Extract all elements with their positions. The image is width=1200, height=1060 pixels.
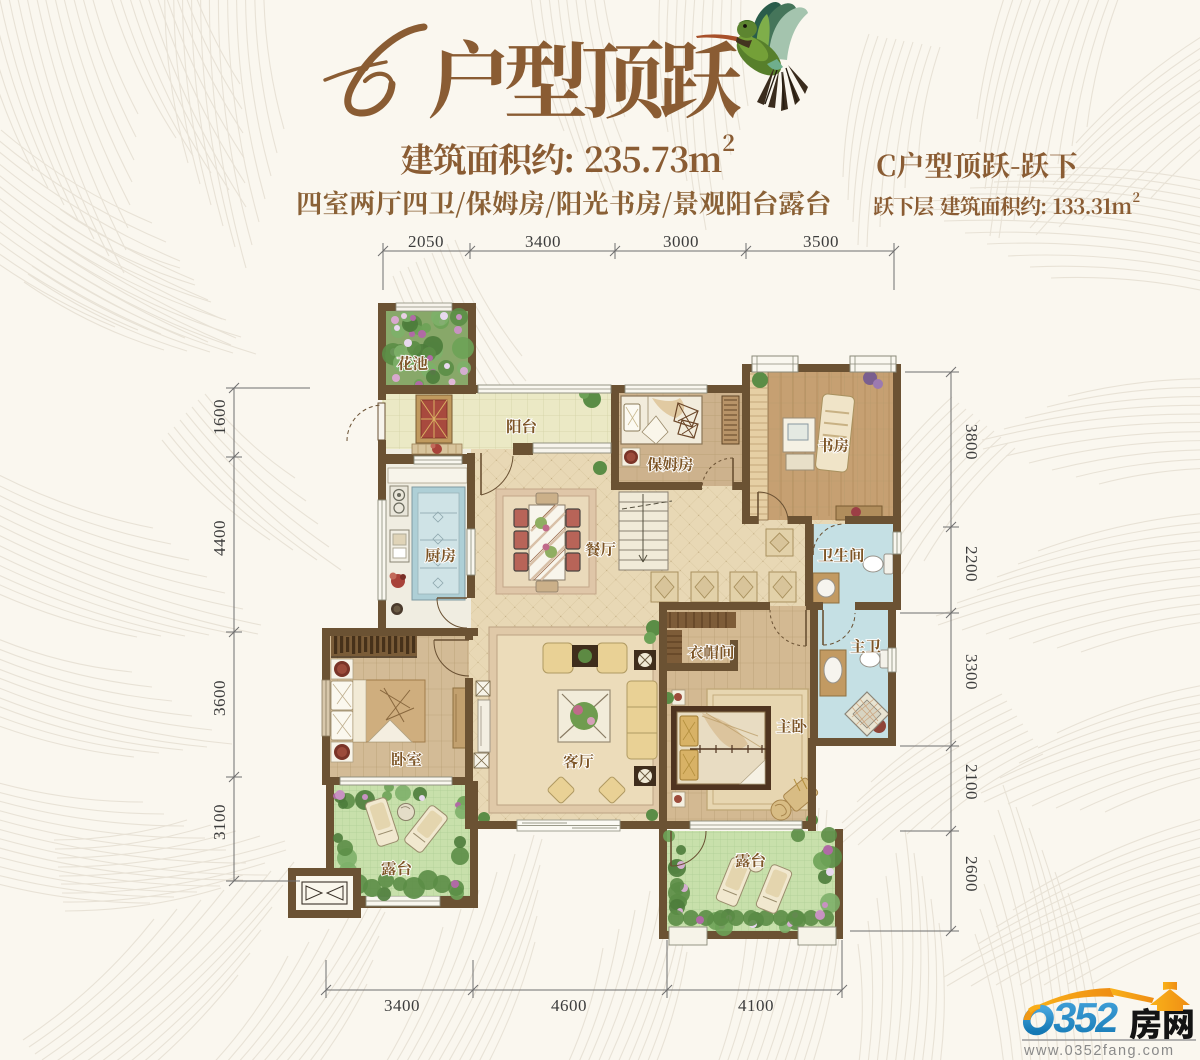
svg-text:www.0352fang.com: www.0352fang.com — [1023, 1043, 1175, 1059]
svg-text:352: 352 — [1050, 994, 1120, 1041]
